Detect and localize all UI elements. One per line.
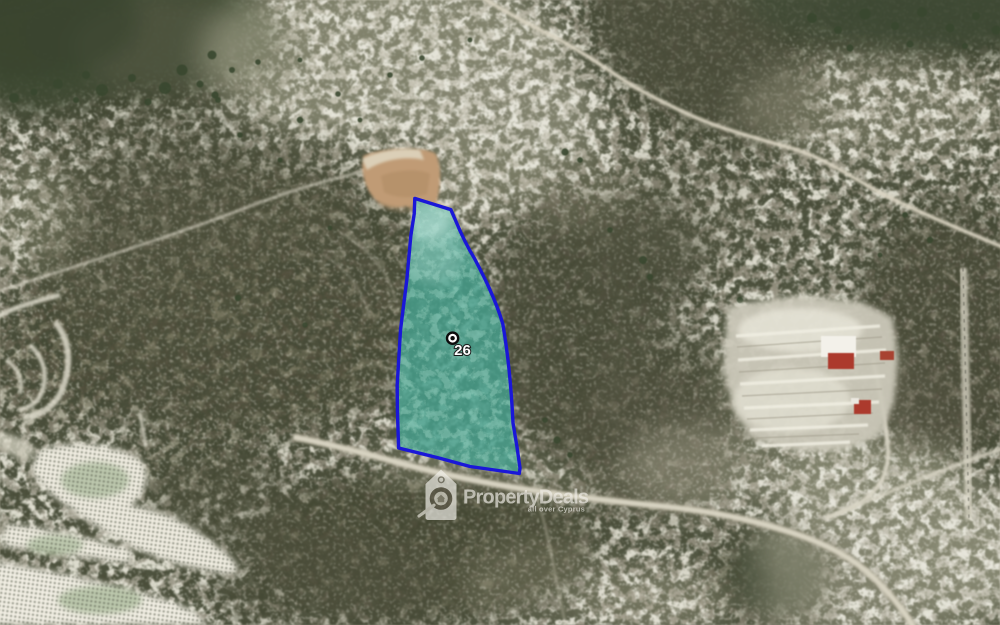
svg-text:all over Cyprus: all over Cyprus [528, 505, 585, 514]
svg-text:26: 26 [454, 342, 471, 359]
